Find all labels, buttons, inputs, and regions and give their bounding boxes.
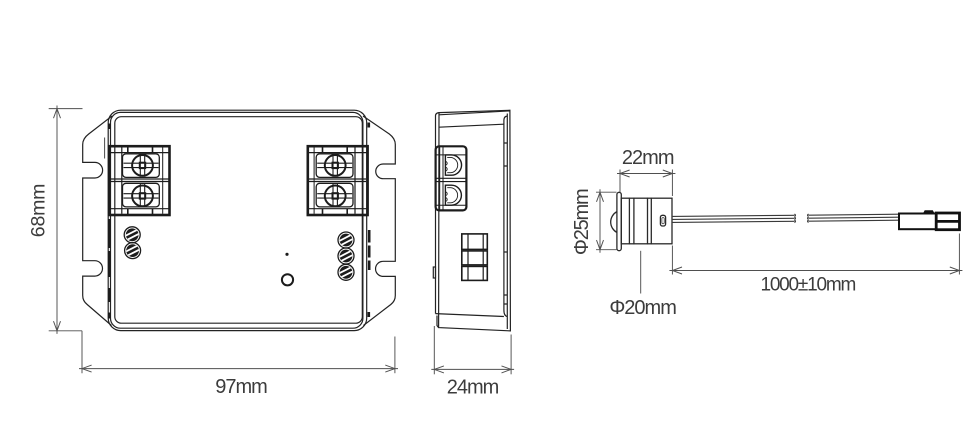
svg-text:68mm: 68mm — [28, 184, 50, 237]
svg-text:Φ25mm: Φ25mm — [571, 189, 593, 255]
svg-text:22mm: 22mm — [622, 147, 674, 169]
svg-text:Φ20mm: Φ20mm — [609, 297, 676, 319]
svg-text:97mm: 97mm — [215, 376, 267, 398]
svg-text:1000±10mm: 1000±10mm — [760, 275, 855, 296]
svg-text:24mm: 24mm — [447, 377, 499, 399]
